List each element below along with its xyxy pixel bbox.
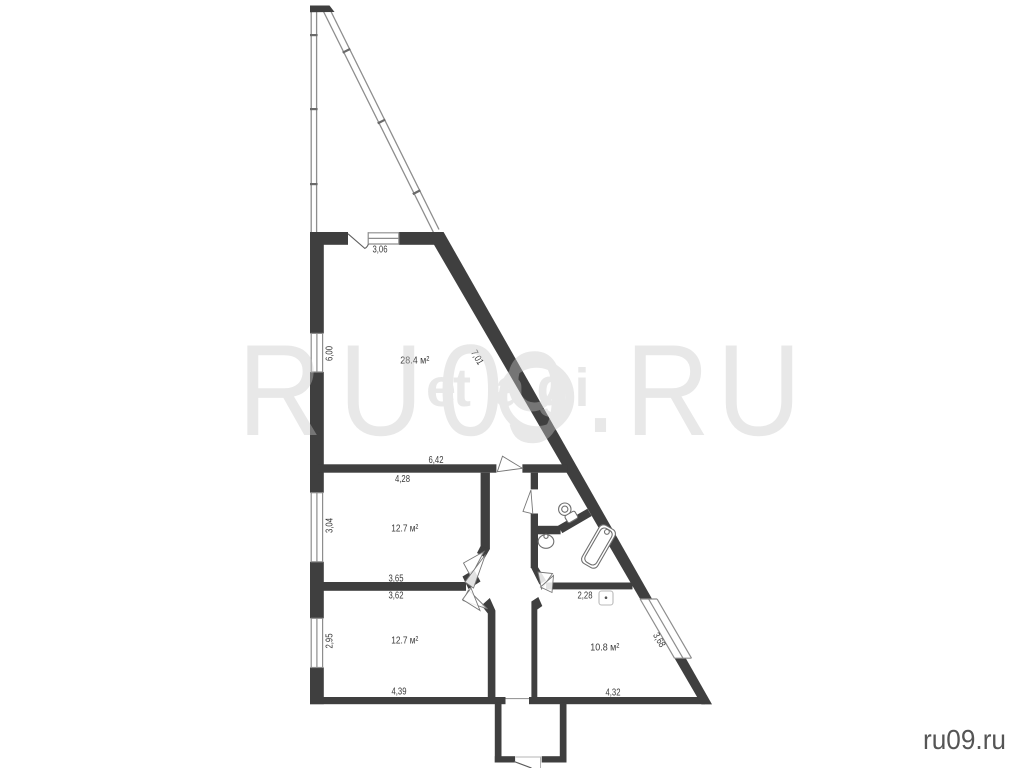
- svg-text:U: U: [339, 318, 423, 463]
- svg-text:10.8 м²: 10.8 м²: [590, 642, 619, 654]
- svg-text:t: t: [453, 358, 471, 418]
- svg-text:R: R: [625, 318, 709, 463]
- svg-text:R: R: [238, 318, 322, 463]
- svg-text:4,39: 4,39: [392, 687, 407, 698]
- svg-text:e: e: [426, 358, 456, 418]
- svg-text:4,28: 4,28: [395, 474, 410, 485]
- svg-text:ru09.ru: ru09.ru: [923, 724, 1006, 755]
- svg-text:i: i: [574, 358, 589, 418]
- svg-text:2,95: 2,95: [325, 633, 336, 648]
- svg-text:U: U: [717, 318, 801, 463]
- svg-text:2,28: 2,28: [578, 591, 593, 602]
- svg-text:12.7 м²: 12.7 м²: [391, 635, 418, 647]
- svg-text:6,00: 6,00: [325, 346, 336, 361]
- svg-text:12.7 м²: 12.7 м²: [391, 523, 418, 535]
- svg-text:3,06: 3,06: [373, 245, 388, 256]
- svg-text:a: a: [495, 358, 526, 418]
- svg-text:3,62: 3,62: [389, 591, 404, 602]
- svg-text:4,32: 4,32: [606, 688, 621, 699]
- svg-text:3,65: 3,65: [389, 574, 404, 585]
- svg-text:g: g: [537, 358, 570, 418]
- svg-text:3,04: 3,04: [325, 518, 336, 533]
